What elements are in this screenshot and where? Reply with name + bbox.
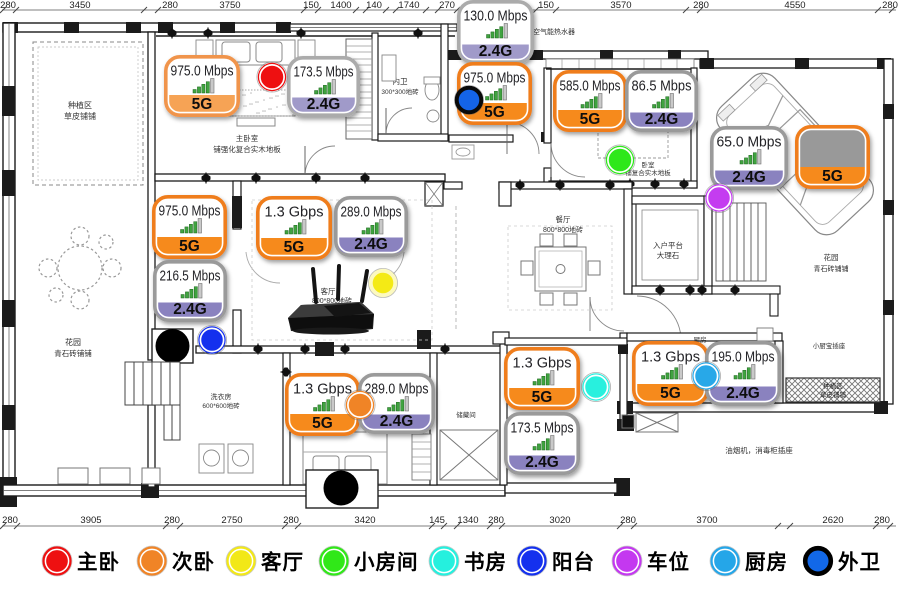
svg-text:280: 280 [882,0,898,11]
svg-text:280: 280 [2,515,18,526]
svg-text:餐厅: 餐厅 [556,215,571,224]
svg-text:客厅: 客厅 [321,286,336,296]
svg-text:2750: 2750 [221,515,242,526]
svg-text:173.5 Mbps: 173.5 Mbps [511,421,574,437]
svg-text:草皮铺铺: 草皮铺铺 [820,390,847,399]
svg-text:2.4G: 2.4G [354,236,388,253]
svg-text:300*300地砖: 300*300地砖 [381,87,419,96]
svg-text:外卫: 外卫 [838,550,881,574]
svg-text:2.4G: 2.4G [380,413,414,430]
svg-text:5G: 5G [484,104,505,121]
svg-text:5G: 5G [580,111,601,128]
svg-text:216.5 Mbps: 216.5 Mbps [160,269,221,285]
svg-text:5G: 5G [532,389,553,406]
svg-text:小房间: 小房间 [354,550,419,574]
svg-text:289.0 Mbps: 289.0 Mbps [341,205,402,221]
svg-text:2.4G: 2.4G [479,43,513,60]
svg-text:储藏间: 储藏间 [456,410,476,419]
svg-text:种植区: 种植区 [823,381,843,390]
svg-text:975.0 Mbps: 975.0 Mbps [464,71,526,87]
svg-text:145: 145 [429,515,445,526]
svg-text:次卧: 次卧 [172,550,215,574]
svg-text:280: 280 [693,0,709,11]
svg-text:青石砖铺铺: 青石砖铺铺 [54,348,92,358]
svg-text:585.0 Mbps: 585.0 Mbps [560,79,621,95]
svg-text:150: 150 [538,0,554,11]
svg-text:195.0 Mbps: 195.0 Mbps [712,350,775,366]
svg-text:2.4G: 2.4G [525,454,559,471]
svg-text:3750: 3750 [219,0,240,11]
svg-text:130.0 Mbps: 130.0 Mbps [464,9,528,25]
svg-text:草皮铺铺: 草皮铺铺 [64,111,96,121]
svg-text:3700: 3700 [696,515,717,526]
svg-text:150: 150 [303,0,319,11]
svg-text:280: 280 [488,515,504,526]
svg-text:975.0 Mbps: 975.0 Mbps [159,204,221,220]
svg-text:2.4G: 2.4G [645,111,679,128]
svg-text:600*600地砖: 600*600地砖 [202,401,240,410]
svg-text:2620: 2620 [822,515,843,526]
svg-text:入户平台: 入户平台 [653,240,683,250]
svg-text:阳台: 阳台 [552,550,595,574]
svg-text:主卧: 主卧 [77,550,120,574]
svg-text:1.3 Gbps: 1.3 Gbps [641,350,700,366]
svg-text:3420: 3420 [354,515,375,526]
svg-text:1.3 Gbps: 1.3 Gbps [265,205,324,221]
svg-text:青石砖铺铺: 青石砖铺铺 [814,264,849,273]
svg-text:卧室: 卧室 [642,160,656,169]
svg-text:2.4G: 2.4G [173,301,207,318]
svg-text:空气能热水器: 空气能热水器 [533,27,575,36]
svg-text:主卧室: 主卧室 [236,133,259,143]
svg-text:5G: 5G [822,168,843,185]
svg-text:280: 280 [164,515,180,526]
svg-text:铺强化复合实木地板: 铺强化复合实木地板 [213,144,281,154]
svg-text:280: 280 [620,515,636,526]
svg-text:4550: 4550 [784,0,805,11]
svg-text:3905: 3905 [80,515,101,526]
svg-text:5G: 5G [284,239,305,256]
svg-text:2.4G: 2.4G [726,385,760,402]
svg-text:车位: 车位 [647,550,690,574]
svg-text:140: 140 [366,0,382,11]
svg-text:花园: 花园 [824,252,839,262]
svg-text:5G: 5G [312,415,333,432]
svg-text:1.3 Gbps: 1.3 Gbps [293,382,352,398]
svg-text:油烟机，消毒柜插座: 油烟机，消毒柜插座 [725,445,793,455]
svg-text:280: 280 [283,515,299,526]
svg-text:花园: 花园 [65,337,81,347]
svg-text:1.3 Gbps: 1.3 Gbps [513,356,572,372]
svg-text:65.0 Mbps: 65.0 Mbps [717,135,782,151]
svg-text:280: 280 [162,0,178,11]
svg-text:5G: 5G [660,385,681,402]
svg-text:小厨宝插座: 小厨宝插座 [813,341,846,350]
svg-text:5G: 5G [192,96,213,113]
svg-text:975.0 Mbps: 975.0 Mbps [171,64,234,80]
svg-text:大理石: 大理石 [657,250,680,260]
svg-text:3020: 3020 [549,515,570,526]
svg-text:1740: 1740 [398,0,419,11]
svg-text:280: 280 [874,515,890,526]
svg-text:洗衣房: 洗衣房 [211,392,232,401]
svg-text:173.5 Mbps: 173.5 Mbps [294,65,354,81]
svg-text:86.5 Mbps: 86.5 Mbps [632,79,692,95]
svg-text:289.0 Mbps: 289.0 Mbps [365,382,429,398]
svg-text:1400: 1400 [330,0,351,11]
svg-text:2.4G: 2.4G [732,169,766,186]
svg-text:1340: 1340 [457,515,478,526]
svg-text:厨房: 厨房 [745,550,788,574]
svg-text:客厅: 客厅 [260,550,304,574]
svg-text:5G: 5G [179,238,200,255]
svg-text:种植区: 种植区 [68,100,92,110]
svg-text:270: 270 [439,0,455,11]
svg-text:2.4G: 2.4G [307,96,341,113]
svg-text:书房: 书房 [464,550,507,574]
svg-text:280: 280 [0,0,16,11]
svg-text:3450: 3450 [69,0,90,11]
svg-text:3570: 3570 [610,0,631,11]
